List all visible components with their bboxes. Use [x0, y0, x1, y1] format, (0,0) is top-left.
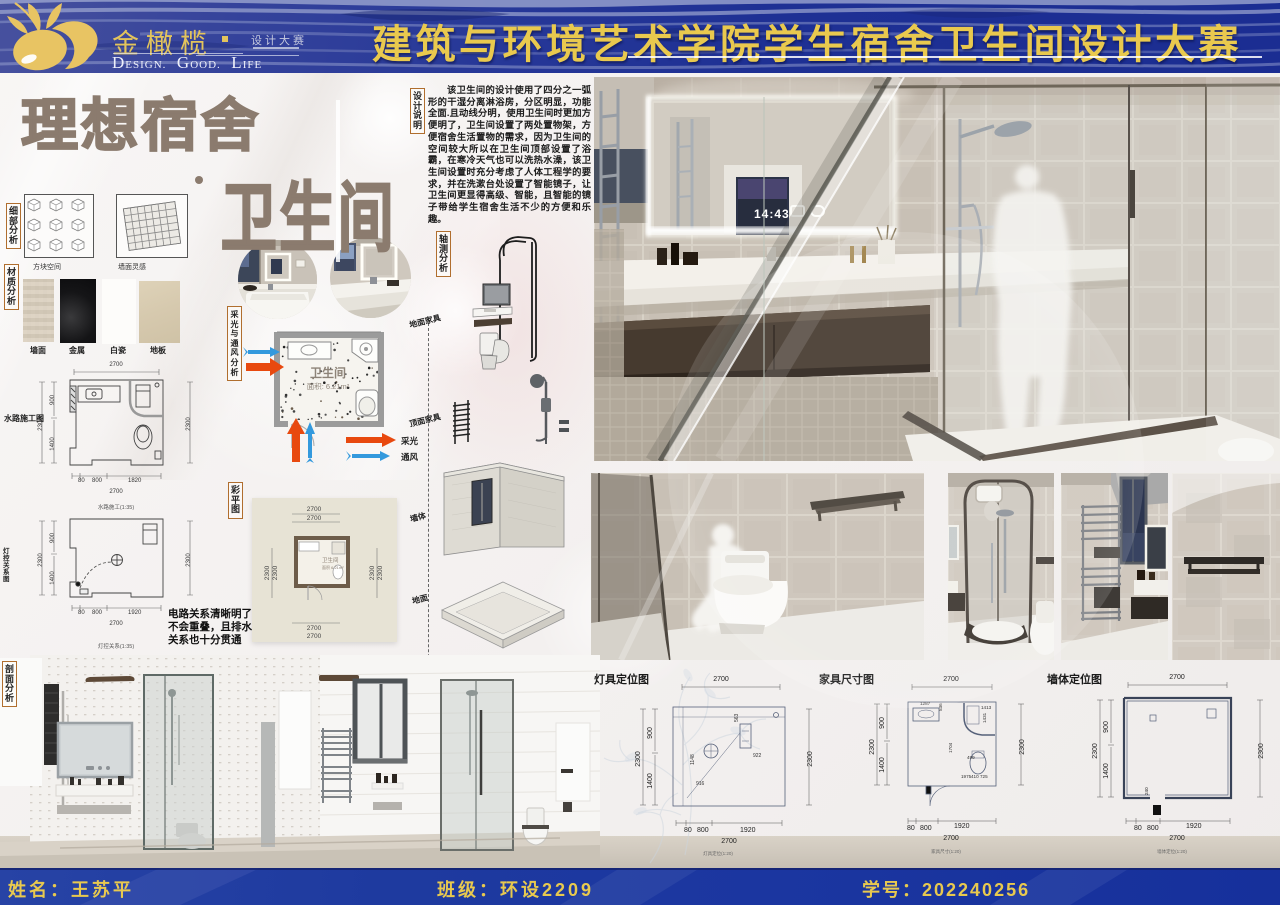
svg-text:面积 6.21m²: 面积 6.21m²	[322, 564, 344, 570]
svg-text:240: 240	[1144, 787, 1149, 795]
svg-text:80: 80	[1134, 825, 1142, 832]
svg-text:1920: 1920	[740, 827, 756, 834]
svg-text:80: 80	[78, 478, 85, 484]
svg-text:2300: 2300	[272, 565, 279, 580]
svg-text:1431: 1431	[982, 712, 987, 723]
svg-text:922: 922	[753, 753, 762, 759]
svg-text:2700: 2700	[109, 362, 123, 368]
svg-text:家具尺寸(1:20): 家具尺寸(1:20)	[931, 848, 961, 855]
svg-text:410: 410	[971, 774, 979, 779]
svg-text:1400: 1400	[50, 571, 56, 585]
svg-text:800: 800	[697, 827, 709, 834]
svg-text:2300: 2300	[377, 565, 384, 580]
svg-text:面积: 6.21m²: 面积: 6.21m²	[307, 381, 350, 391]
svg-text:2700: 2700	[307, 506, 322, 513]
svg-text:80: 80	[907, 825, 915, 832]
svg-text:卫生间: 卫生间	[310, 365, 346, 380]
svg-text:卫生间: 卫生间	[322, 556, 339, 564]
svg-text:900: 900	[50, 532, 56, 543]
svg-text:1820: 1820	[128, 478, 142, 484]
svg-text:2700: 2700	[1169, 835, 1185, 842]
svg-text:14:43: 14:43	[754, 207, 790, 221]
svg-text:800: 800	[92, 610, 103, 616]
svg-text:1400: 1400	[879, 757, 886, 773]
svg-text:2300: 2300	[1258, 743, 1265, 759]
svg-text:水路施工(1:35): 水路施工(1:35)	[98, 503, 135, 511]
svg-text:499: 499	[967, 755, 975, 760]
svg-text:2700: 2700	[307, 625, 322, 632]
svg-text:2300: 2300	[869, 739, 876, 755]
svg-text:2300: 2300	[186, 553, 192, 567]
svg-text:2300: 2300	[38, 553, 44, 567]
svg-text:墙体定位(1:20): 墙体定位(1:20)	[1157, 848, 1187, 855]
svg-text:2300: 2300	[1092, 743, 1099, 759]
svg-text:2700: 2700	[721, 838, 737, 845]
svg-text:灯具定位图: 灯具定位图	[594, 672, 649, 686]
svg-text:2700: 2700	[943, 835, 959, 842]
svg-text:2300: 2300	[1019, 739, 1026, 755]
svg-text:2700: 2700	[307, 633, 322, 640]
svg-text:2700: 2700	[713, 676, 729, 683]
svg-text:800: 800	[92, 478, 103, 484]
svg-text:1400: 1400	[50, 437, 56, 451]
svg-text:1920: 1920	[128, 610, 142, 616]
svg-text:2700: 2700	[307, 515, 322, 522]
svg-text:灯控关系(1:35): 灯控关系(1:35)	[98, 642, 135, 650]
svg-text:2700: 2700	[109, 489, 123, 495]
svg-text:800: 800	[920, 825, 932, 832]
svg-text:1920: 1920	[954, 823, 970, 830]
svg-text:1148: 1148	[690, 754, 696, 765]
svg-text:2700: 2700	[1169, 674, 1185, 681]
svg-text:灯具定位(1:20): 灯具定位(1:20)	[703, 850, 733, 857]
svg-text:80: 80	[78, 610, 85, 616]
svg-text:2300: 2300	[635, 751, 642, 767]
svg-text:1704: 1704	[948, 742, 953, 753]
svg-text:725: 725	[980, 774, 988, 779]
svg-text:2300: 2300	[264, 565, 271, 580]
svg-text:900: 900	[50, 394, 56, 405]
svg-text:2300: 2300	[807, 751, 814, 767]
svg-text:通风: 通风	[401, 452, 419, 462]
svg-text:900: 900	[1103, 721, 1110, 733]
svg-text:1400: 1400	[647, 773, 654, 789]
svg-text:1413: 1413	[981, 705, 992, 710]
svg-text:采光: 采光	[400, 436, 419, 446]
svg-text:1400: 1400	[1103, 763, 1110, 779]
svg-text:800: 800	[1147, 825, 1159, 832]
svg-text:916: 916	[696, 781, 705, 787]
svg-text:2300: 2300	[369, 565, 376, 580]
svg-text:80: 80	[684, 827, 692, 834]
svg-text:900: 900	[647, 727, 654, 739]
svg-text:563: 563	[734, 713, 740, 722]
svg-text:1920: 1920	[1186, 823, 1202, 830]
svg-text:墙体定位图: 墙体定位图	[1047, 672, 1102, 686]
svg-text:2300: 2300	[186, 417, 192, 431]
svg-text:900: 900	[879, 717, 886, 729]
svg-text:2700: 2700	[109, 621, 123, 627]
